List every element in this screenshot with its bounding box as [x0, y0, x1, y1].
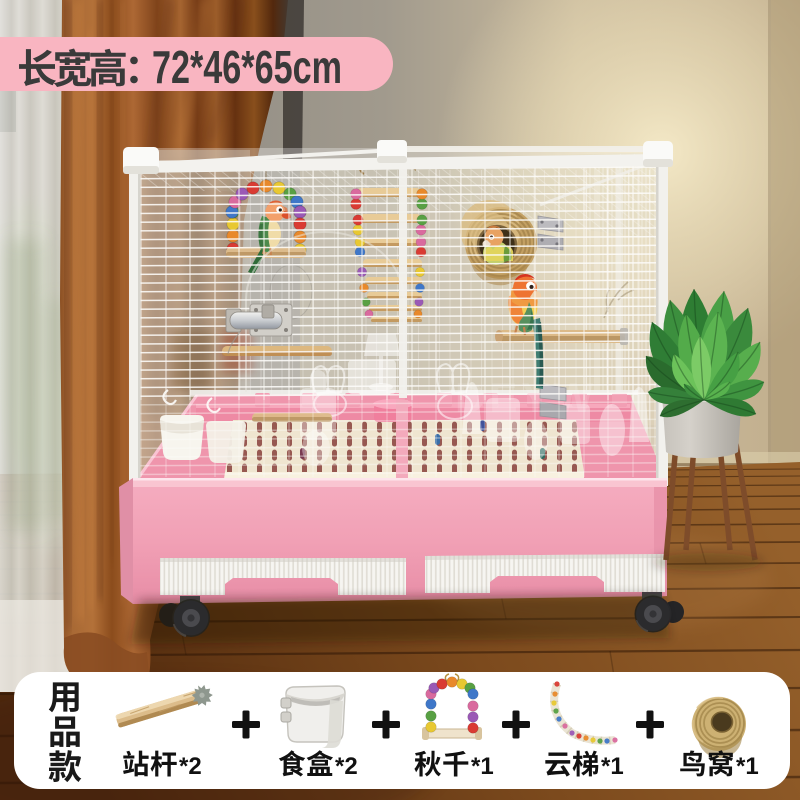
svg-text:*2: *2 [335, 753, 358, 780]
svg-text:*1: *1 [601, 753, 624, 780]
svg-text:DEYW: DEYW [455, 374, 597, 421]
svg-text:*1: *1 [736, 753, 759, 780]
svg-text:*1: *1 [471, 753, 494, 780]
svg-text:*2: *2 [179, 753, 202, 780]
svg-text:72*46*65cm: 72*46*65cm [152, 41, 342, 93]
